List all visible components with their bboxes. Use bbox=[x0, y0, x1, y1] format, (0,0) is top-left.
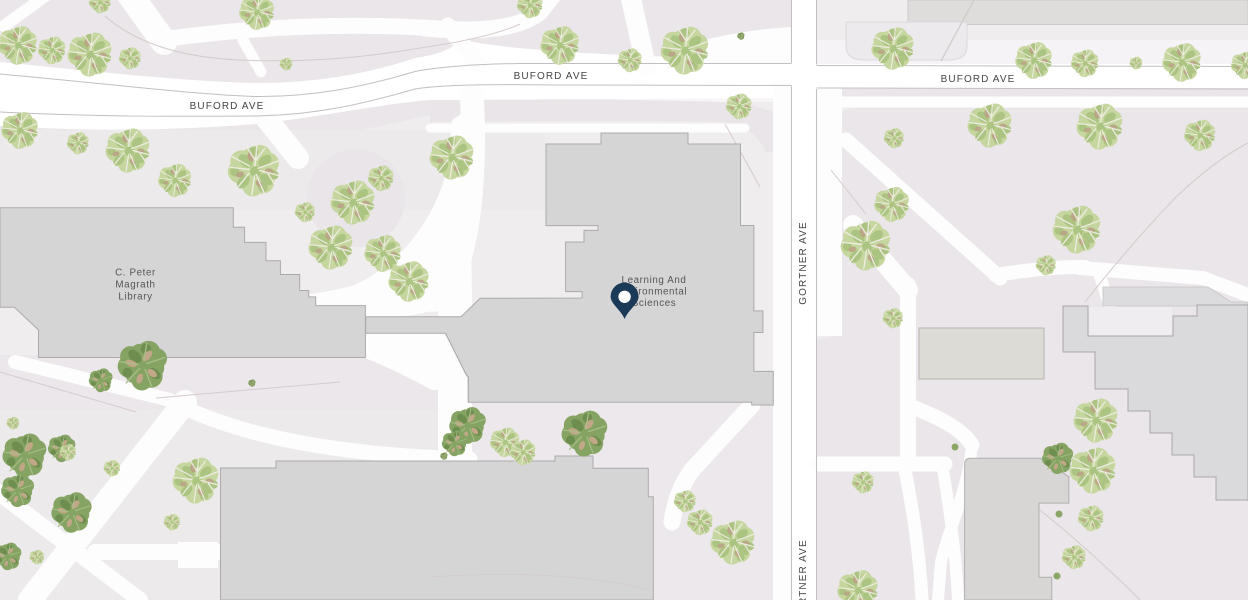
svg-text:BUFORD AVE: BUFORD AVE bbox=[514, 71, 589, 82]
svg-text:BUFORD AVE: BUFORD AVE bbox=[190, 101, 265, 112]
svg-text:BUFORD AVE: BUFORD AVE bbox=[941, 74, 1016, 85]
svg-text:Magrath: Magrath bbox=[115, 280, 155, 291]
svg-text:GORTNER AVE: GORTNER AVE bbox=[798, 221, 809, 304]
svg-text:C. Peter: C. Peter bbox=[115, 268, 156, 279]
svg-text:Library: Library bbox=[118, 292, 152, 303]
svg-text:GORTNER AVE: GORTNER AVE bbox=[798, 539, 809, 600]
svg-text:Sciences: Sciences bbox=[632, 298, 677, 309]
